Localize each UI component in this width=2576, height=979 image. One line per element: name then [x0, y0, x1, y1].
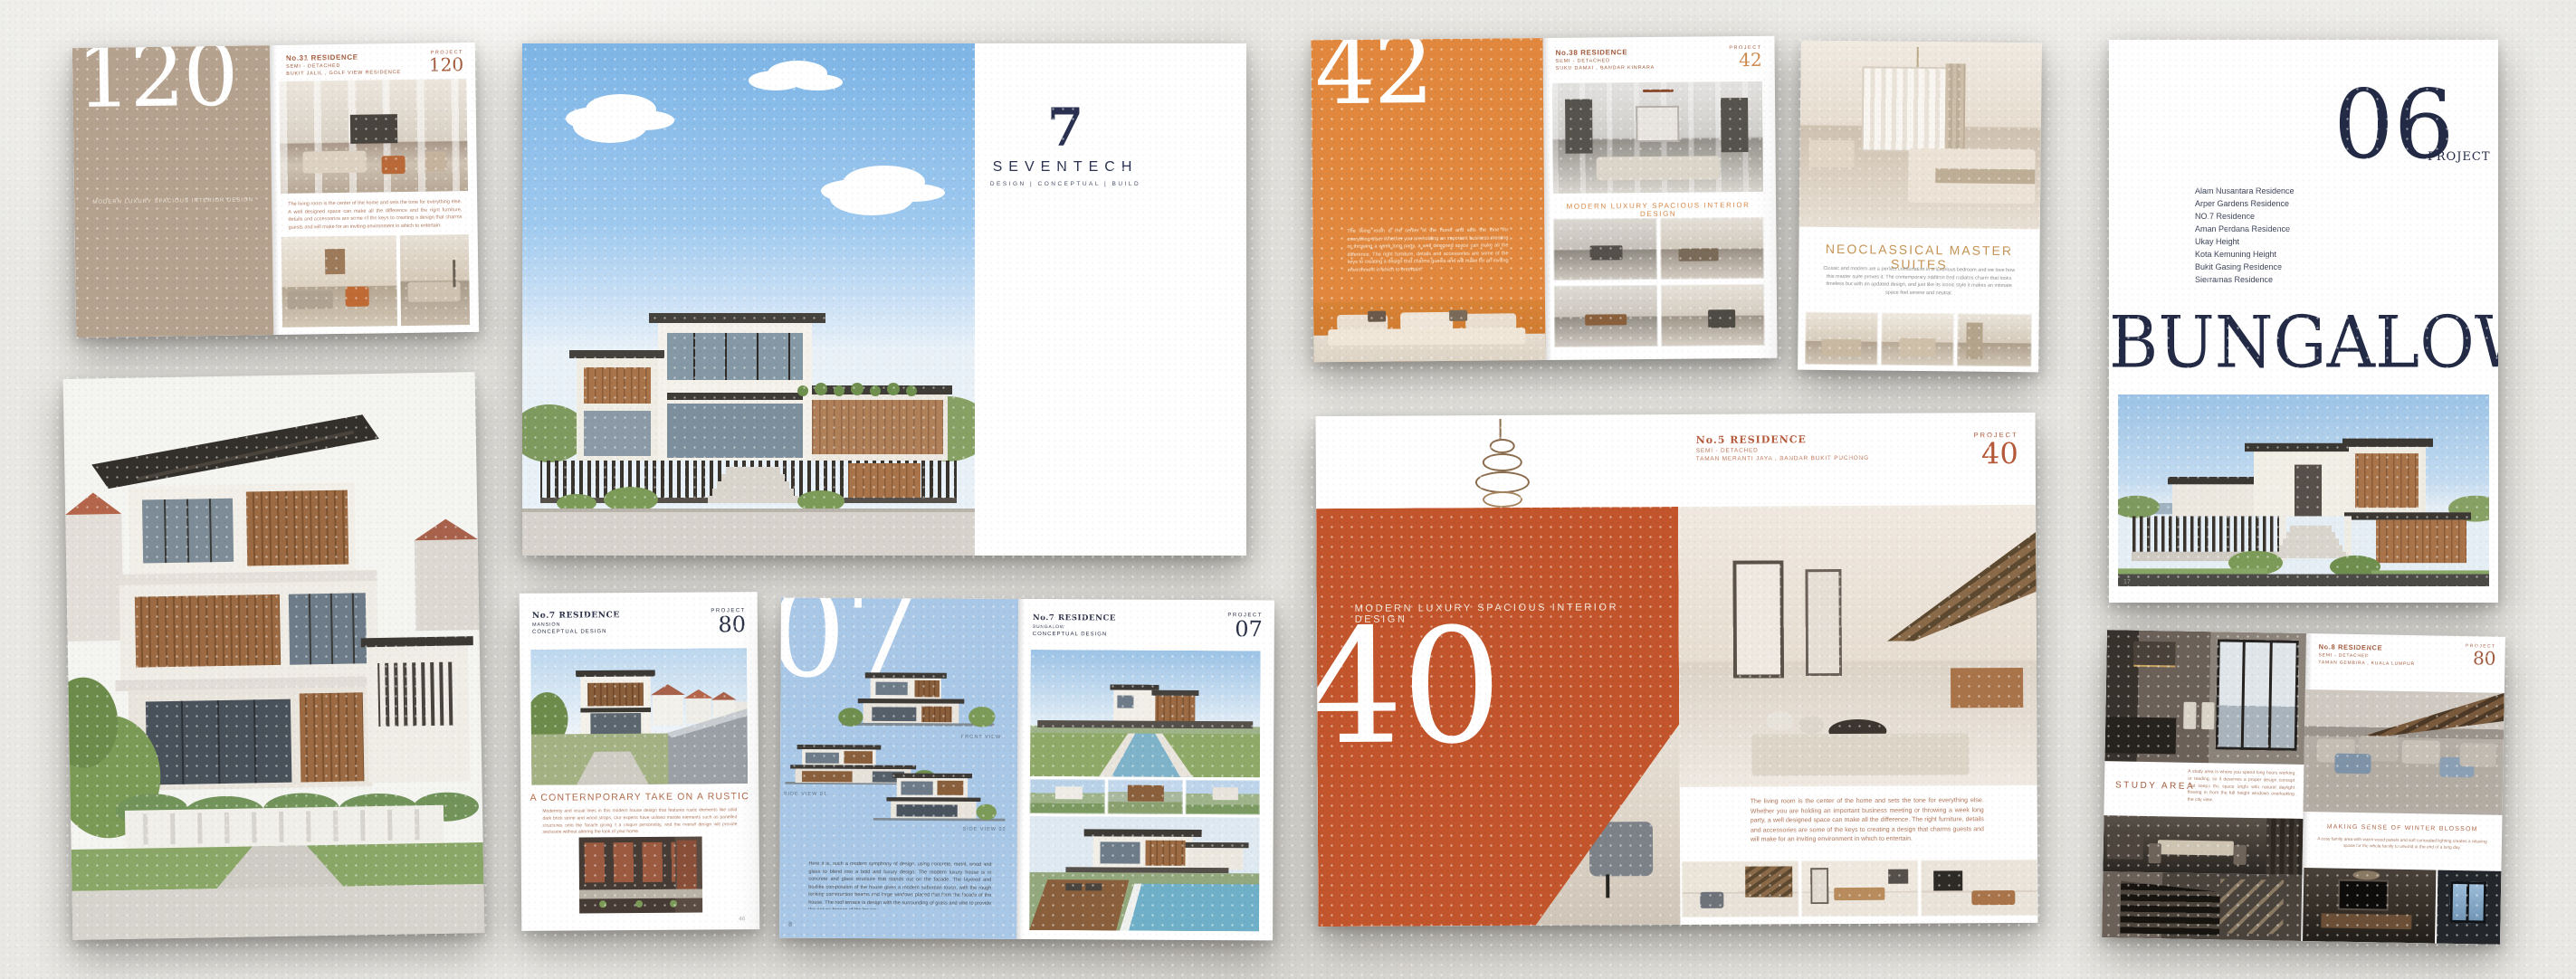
project-tag-07: PROJECT 07 [1214, 613, 1263, 640]
tv-wall [1636, 106, 1679, 142]
photo-bungalow-rendering [2118, 394, 2489, 586]
dining-chair [2233, 845, 2246, 865]
art-frame [1888, 870, 1908, 884]
photo-siteplan [579, 837, 703, 914]
bed-small [1899, 338, 1935, 356]
page-bungalow: 06 PROJECT Alam Nusantara Residence Arpe… [2109, 40, 2498, 603]
project-number: 120 [407, 55, 463, 74]
stair-diagonal [2359, 690, 2504, 740]
residence-type: SEMI - DETACHED [1696, 447, 1932, 454]
photo-strip-cell [1921, 860, 2037, 917]
window-sheer [1864, 68, 1946, 150]
page-project80: No.7 RESIDENCE MANSION CONCEPTUAL DESIGN… [520, 592, 760, 931]
bed-small [1821, 339, 1861, 356]
spread-07: 07 FRONT VIEW [779, 598, 1274, 941]
path [579, 889, 702, 899]
portfolio-board: 120 MODERN LUXURY SPACIOUS INTERIOR DESI… [0, 0, 2576, 979]
photo-kitchen-dark [2104, 630, 2305, 765]
cabinet-light [2133, 642, 2175, 666]
door-frame [1810, 868, 1828, 904]
spread-seventech: 7 SEVENTECH DESIGN | CONCEPTUAL | BUILD [522, 43, 1246, 556]
residence-type: SEMI - DETACHED [286, 62, 422, 70]
body-07: Here it is, such a modern symphony of de… [808, 860, 991, 910]
chandelier [1472, 419, 1531, 508]
elevation-front-svg [833, 665, 1001, 731]
photo-strip-cell [1682, 860, 1798, 917]
photo-grid-cell [1553, 218, 1657, 280]
caption-side-view-01: SIDE VIEW 01 [784, 792, 865, 797]
body-neoclassical: Classic and modern are a perfect combina… [1820, 265, 2018, 303]
logo-name: SEVENTECH [979, 159, 1151, 176]
bar-chair [2201, 702, 2215, 729]
project-list-item: Bukit Gasing Residence [2195, 261, 2376, 273]
tv-panel [1933, 870, 1962, 890]
house-block [1213, 787, 1238, 800]
wardrobe [1966, 323, 1982, 359]
sofa-pillow [1449, 310, 1467, 321]
residence-type: BUNGALOW [1033, 624, 1178, 631]
curtain-dark [2266, 818, 2303, 875]
pouf [1798, 716, 1824, 734]
big-number-120: 120 [76, 45, 237, 117]
furniture-block [1678, 248, 1718, 261]
spread-80-dark: STUDY AREA A study area is where you spe… [2102, 630, 2505, 945]
sofa [288, 290, 333, 309]
accent-chair [381, 156, 405, 174]
dining-table [1585, 314, 1627, 325]
logo-number: 7 [979, 101, 1151, 154]
header-40: No.5 RESIDENCE SEMI - DETACHED TAMAN MER… [1696, 433, 1932, 462]
header-42: No.38 RESIDENCE SEMI - DETACHED SUKU DAM… [1556, 48, 1692, 71]
wall-panel [1721, 98, 1749, 152]
chandelier-ring [1475, 471, 1530, 493]
project-label-06: PROJECT [2428, 150, 2491, 164]
body-40: The living room is the center of the hom… [1751, 796, 1984, 851]
elevation-side2-svg [871, 768, 1008, 825]
project-number: 80 [697, 613, 746, 635]
photo-sofa-stair [2304, 689, 2504, 815]
page-07-left: 07 FRONT VIEW [779, 598, 1018, 939]
house-block [1128, 785, 1164, 802]
tv-panel [350, 114, 397, 144]
caption-42: MODERN LUXURY SPACIOUS INTERIOR DESIGN [1553, 201, 1763, 219]
header-120: No.31 RESIDENCE SEMI - DETACHED BUKIT JA… [286, 52, 422, 77]
photo-grand-living [279, 79, 468, 194]
wall-panel [1565, 100, 1593, 154]
floor-lamp [453, 260, 455, 287]
furniture-block [1589, 245, 1622, 260]
project-list: Alam Nusantara Residence Arper Gardens R… [2195, 185, 2376, 286]
photo-warm-living-2 [400, 234, 470, 326]
armchair-leg [1606, 874, 1609, 898]
dining-chair [2149, 843, 2161, 863]
rug [1751, 733, 1969, 775]
residence-name: No.8 RESIDENCE [2319, 642, 2437, 652]
photo-dining-dark [2103, 815, 2303, 875]
shrub [670, 900, 677, 908]
stair-rail [2219, 879, 2284, 934]
photo-neighborhood [530, 648, 748, 785]
door-frame [1732, 560, 1784, 678]
project-tag-80: PROJECT 80 [697, 608, 746, 635]
bungalow-house-svg [2118, 394, 2489, 586]
photo-window-dark [2437, 870, 2501, 945]
page-120-left: 120 MODERN LUXURY SPACIOUS INTERIOR DESI… [72, 45, 273, 337]
residence-name: No.31 RESIDENCE [286, 52, 422, 62]
decor-branch [2352, 870, 2380, 880]
large-house-svg [63, 372, 485, 940]
accent-chair [425, 151, 446, 171]
neighborhood-svg [530, 648, 748, 785]
project-list-item: Alam Nusantara Residence [2195, 185, 2376, 197]
project-list-item: Sierramas Residence [2195, 273, 2376, 286]
desk [1808, 140, 1854, 168]
title-bungalow: BUNGALOW [2109, 308, 2498, 378]
photo-sofa-orange [1313, 300, 1546, 362]
spread-42: 42 The living room is the center of the … [1311, 36, 1777, 362]
cloud [566, 107, 629, 130]
photo-strip-cell [1801, 860, 1918, 917]
project-list-item: Arper Gardens Residence [2195, 197, 2376, 210]
photo-suite-small [1805, 312, 1878, 366]
photo-staircase-dark [2102, 871, 2302, 941]
media-console [2321, 913, 2411, 929]
house-rendering-svg [522, 257, 975, 556]
residence-location: TAMAN GEMBIRA , KUALA LUMPUR [2318, 660, 2436, 667]
photo-render-canal [1030, 650, 1261, 777]
sofa [302, 151, 366, 174]
house-block [1055, 786, 1083, 799]
body-80: Modernity and visual lines in this moder… [542, 807, 737, 834]
bar-chair [2183, 702, 2197, 729]
sofa-cushion-blue [2334, 754, 2371, 775]
project-tag-40: PROJECT 40 [1955, 431, 2018, 468]
page-number: 17 [2123, 579, 2131, 585]
window-view [2216, 639, 2299, 751]
photo-foyer-main [1678, 505, 2037, 787]
project-list-item: Kota Kemuning Height [2195, 248, 2376, 261]
pouf [1766, 710, 1793, 730]
photo-house-rendering [522, 43, 975, 556]
header-80: No.7 RESIDENCE MANSION CONCEPTUAL DESIGN [532, 611, 668, 635]
photo-render-pool [1029, 816, 1260, 931]
roof-block [677, 841, 697, 891]
sofa-pillow [1368, 311, 1386, 322]
sofa [1971, 890, 2015, 905]
render-canal-svg [1030, 650, 1261, 777]
big-number-40: 40 [1316, 614, 1501, 761]
study-body: A study area is where you spend long hou… [2187, 769, 2295, 814]
residence-location: SUKU DAMAI , BANDAR KINRARA [1556, 65, 1692, 71]
residence-name: No.5 RESIDENCE [1696, 433, 1932, 446]
cloud [821, 179, 893, 203]
caption-winter: MAKING SENSE OF WINTER BLOSSOM [2303, 823, 2502, 833]
project-tag-80-dark: PROJECT 80 [2452, 643, 2495, 668]
shrub [599, 900, 606, 908]
project-tag-42: PROJECT 42 [1706, 45, 1762, 70]
design-stage: CONCEPTUAL DESIGN [1033, 632, 1178, 638]
chandelier-ring [1483, 491, 1522, 508]
art-frame [325, 249, 345, 274]
bed-runner [1935, 168, 2035, 184]
sofa-base [1328, 328, 1525, 346]
residence-name: No.7 RESIDENCE [1033, 613, 1178, 623]
shrub [635, 900, 643, 908]
photo-warm-living-1 [281, 235, 397, 328]
photo-house-large [63, 372, 485, 940]
photo-main-living-42 [1552, 81, 1763, 194]
tv-screen [2340, 881, 2388, 909]
design-stage: CONCEPTUAL DESIGN [532, 629, 668, 635]
residence-name: No.38 RESIDENCE [1556, 48, 1692, 57]
page-number: 46 [739, 916, 745, 922]
render-pool-svg [1029, 816, 1260, 931]
roof-row [585, 842, 675, 883]
caption-side-view-02: SIDE VIEW 02 [925, 826, 1007, 832]
stair-flight [1886, 532, 2037, 642]
title-80: A CONTERNPORARY TAKE ON A RUSTIC [520, 791, 758, 803]
chandelier-stem [1500, 419, 1502, 439]
sofa [1597, 156, 1720, 180]
project-number: 07 [1214, 618, 1263, 640]
cloud [749, 71, 803, 90]
photo-bedroom [1799, 41, 2042, 230]
photo-grid-cell [1554, 285, 1658, 347]
project-number: 40 [1955, 439, 2018, 468]
logo-tagline: DESIGN | CONCEPTUAL | BUILD [979, 181, 1151, 187]
project-tag-120: PROJECT 120 [407, 50, 463, 74]
stair-steps [2120, 880, 2220, 935]
kitchen-island [2105, 717, 2177, 754]
console-cabinet [1951, 668, 2023, 708]
project-number: 42 [1706, 51, 1762, 70]
residence-type: SEMI - DETACHED [2318, 652, 2436, 660]
curtain [1945, 63, 1966, 154]
project-list-item: Ukay Height [2195, 235, 2376, 248]
photo-strip-cell [1186, 780, 1260, 814]
ceiling-fan [1643, 90, 1674, 92]
residence-location: TAMAN MERANTI JAYA , BANDAR BUKIT PUCHON… [1696, 455, 1932, 462]
page-number: 8 [788, 922, 792, 928]
sideboard [2107, 832, 2144, 860]
photo-suite-small [1881, 313, 1954, 366]
header-80-dark: No.8 RESIDENCE SEMI - DETACHED TAMAN GEM… [2318, 642, 2436, 667]
photo-suite-small [1957, 313, 2032, 366]
header-07: No.7 RESIDENCE BUNGALOW CONCEPTUAL DESIG… [1033, 613, 1178, 638]
armchair [1700, 892, 1723, 908]
photo-grid-cell [1661, 284, 1765, 347]
study-title: STUDY AREA [2115, 780, 2195, 792]
sofa-cushion [2459, 743, 2495, 767]
project-list-item: Aman Perdana Residence [2195, 223, 2376, 235]
chandelier-ring [1490, 439, 1515, 453]
spread-40: MODERN LUXURY SPACIOUS INTERIOR DESIGN 4… [1316, 413, 2038, 927]
page-42-left: 42 The living room is the center of the … [1311, 38, 1545, 362]
residence-name: No.7 RESIDENCE [532, 611, 668, 621]
page-gutter [1016, 599, 1025, 939]
residence-type: MANSION [532, 622, 668, 628]
caption-body: A cosy family area with warm wood panels… [2315, 836, 2489, 862]
photo-strip-cell [1030, 779, 1105, 813]
big-number-42: 42 [1314, 38, 1432, 115]
pendant-light [1917, 47, 1919, 67]
tagline-120: MODERN LUXURY SPACIOUS INTERIOR DESIGN [74, 197, 272, 205]
furniture-block [1708, 309, 1735, 328]
sofa-cushion [2401, 740, 2439, 765]
page-neoclassical: NEOCLASSICAL MASTER SUITES Classic and m… [1798, 41, 2042, 373]
door-frame [1805, 569, 1842, 676]
chandelier-ring [1483, 453, 1522, 471]
intro-text-42: The living room is the center of the hom… [1347, 226, 1509, 288]
project-list-item: NO.7 Residence [2195, 210, 2376, 223]
body-text-120: The living room is the center of the hom… [288, 198, 462, 232]
photo-grid-cell [1660, 217, 1764, 280]
dining-set [1834, 888, 1884, 900]
seventech-logo: 7 SEVENTECH DESIGN | CONCEPTUAL | BUILD [979, 101, 1151, 187]
project-number: 80 [2452, 649, 2495, 668]
accent-chair [346, 287, 369, 307]
photo-strip-cell [1108, 779, 1183, 813]
residence-type: SEMI - DETACHED [1556, 58, 1692, 64]
stair-small [1745, 866, 1792, 897]
photo-tv-wall-dark [2303, 868, 2436, 944]
spread-120: 120 MODERN LUXURY SPACIOUS INTERIOR DESI… [72, 43, 479, 337]
residence-location: BUKIT JALIL , GOLF VIEW RESIDENCE [286, 70, 422, 77]
dining-table [2158, 840, 2234, 855]
